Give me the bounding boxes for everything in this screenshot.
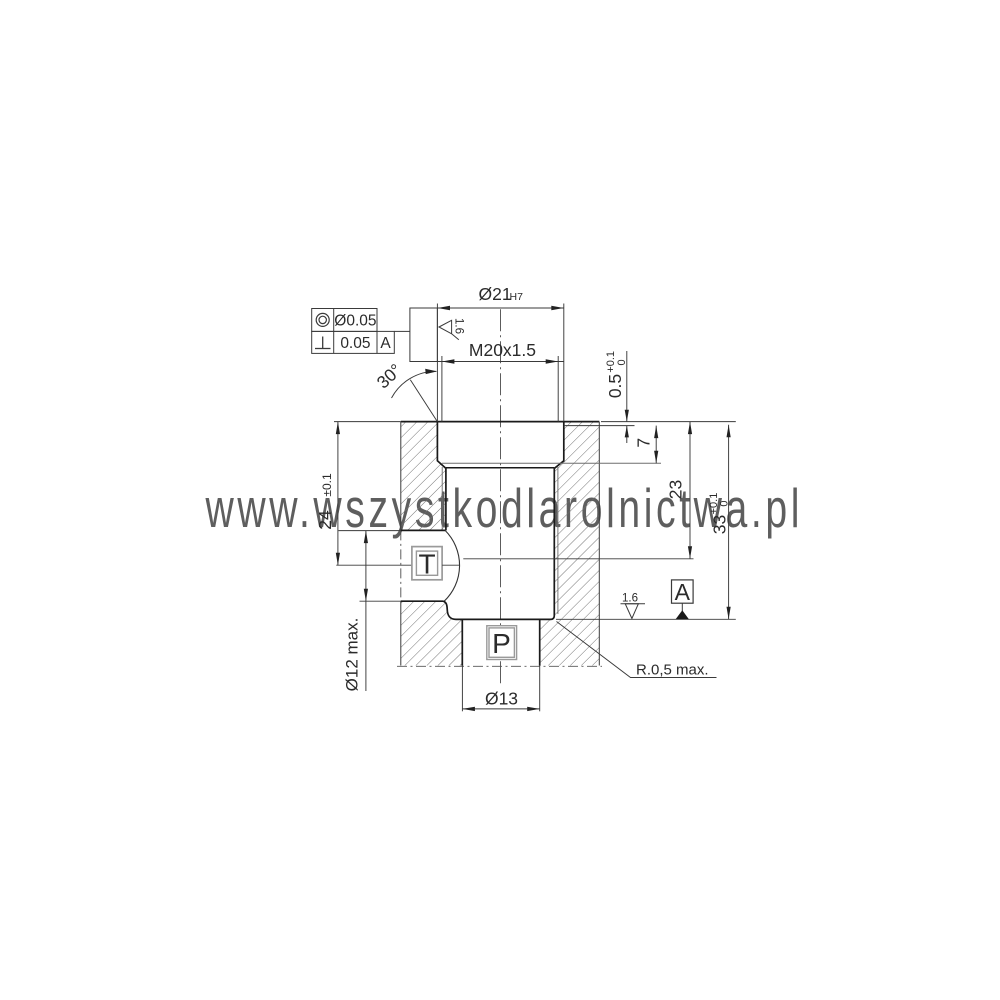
svg-text:1.6: 1.6 xyxy=(622,593,638,605)
svg-text:R.0,5 max.: R.0,5 max. xyxy=(636,662,709,679)
svg-text:Ø12 max.: Ø12 max. xyxy=(343,618,362,692)
svg-text:30°: 30° xyxy=(373,360,406,393)
svg-text:7: 7 xyxy=(633,438,653,448)
svg-text:1.6: 1.6 xyxy=(453,318,465,334)
svg-text:Ø0.05: Ø0.05 xyxy=(334,313,376,330)
svg-text:24: 24 xyxy=(315,510,335,530)
svg-text:A: A xyxy=(675,579,691,605)
svg-text:0: 0 xyxy=(719,500,731,506)
svg-text:0.05: 0.05 xyxy=(340,335,370,352)
svg-text:Ø21: Ø21 xyxy=(479,284,512,304)
svg-text:33: 33 xyxy=(710,515,730,534)
svg-text:Ø13: Ø13 xyxy=(485,689,518,709)
svg-text:A: A xyxy=(380,335,391,352)
svg-text:0.5: 0.5 xyxy=(605,374,625,398)
svg-text:±0.1: ±0.1 xyxy=(320,473,334,497)
svg-text:M20x1.5: M20x1.5 xyxy=(469,340,536,360)
svg-text:H7: H7 xyxy=(510,291,524,303)
svg-text:P: P xyxy=(492,628,511,659)
svg-text:0: 0 xyxy=(616,359,628,365)
svg-text:23: 23 xyxy=(666,480,686,499)
svg-text:T: T xyxy=(418,549,435,580)
